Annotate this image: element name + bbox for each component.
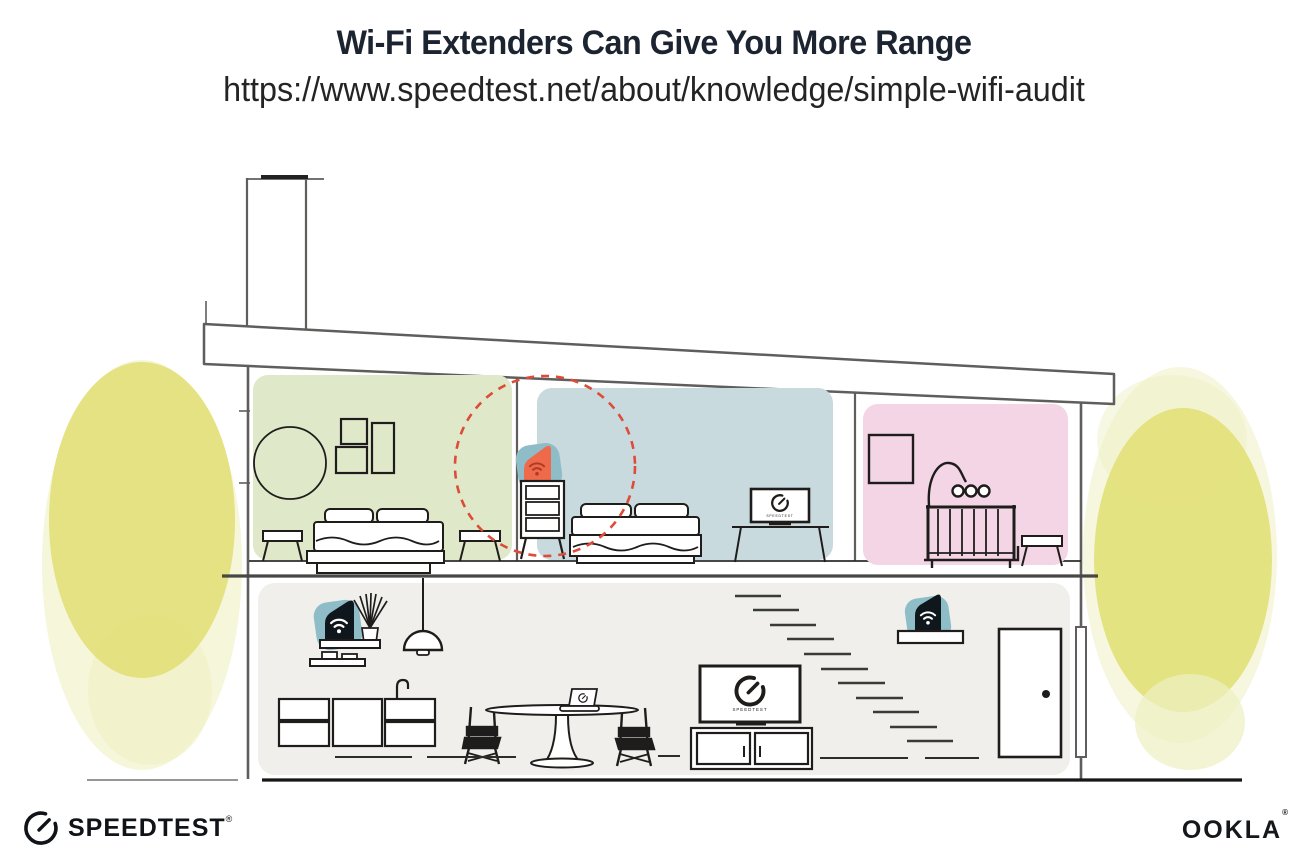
door-knob [1042, 690, 1050, 698]
tv-screen-label: SPEEDTEST [766, 514, 793, 518]
ookla-wordmark: OOKLA [1182, 816, 1282, 844]
speedtest-logo: SPEEDTEST® [22, 809, 232, 847]
living-tv: SPEEDTEST [700, 666, 800, 724]
living-floor: SPEEDTEST [258, 578, 1086, 775]
media-console [691, 728, 812, 769]
ookla-logo: OOKLA® [1182, 816, 1288, 845]
footer: SPEEDTEST® OOKLA® [0, 805, 1308, 861]
bedroom-tv: SPEEDTEST [751, 489, 809, 524]
bedroom-blue: SPEEDTEST [537, 388, 833, 563]
shelf-board [320, 640, 380, 648]
right-bush [1083, 367, 1277, 770]
chimney [247, 177, 324, 330]
left-bush [42, 360, 242, 770]
ookla-reg-mark: ® [1282, 808, 1288, 817]
door-frame-trim [1076, 627, 1086, 757]
page-url: https://www.speedtest.net/about/knowledg… [33, 71, 1276, 110]
bed [570, 504, 701, 563]
page-title: Wi-Fi Extenders Can Give You More Range [33, 24, 1276, 63]
speedtest-wordmark: SPEEDTEST [68, 814, 226, 843]
shelf-board [898, 631, 963, 643]
house-illustration: SPEEDTEST [0, 0, 1308, 861]
speedtest-reg-mark: ® [226, 814, 233, 824]
bedroom-green [253, 375, 512, 573]
tv-screen-label: SPEEDTEST [732, 707, 767, 712]
nursery-pink [863, 404, 1068, 568]
speedtest-gauge-icon [22, 809, 60, 847]
header: Wi-Fi Extenders Can Give You More Range … [0, 0, 1308, 110]
door [999, 629, 1061, 757]
infographic-canvas: SPEEDTEST [0, 0, 1308, 861]
